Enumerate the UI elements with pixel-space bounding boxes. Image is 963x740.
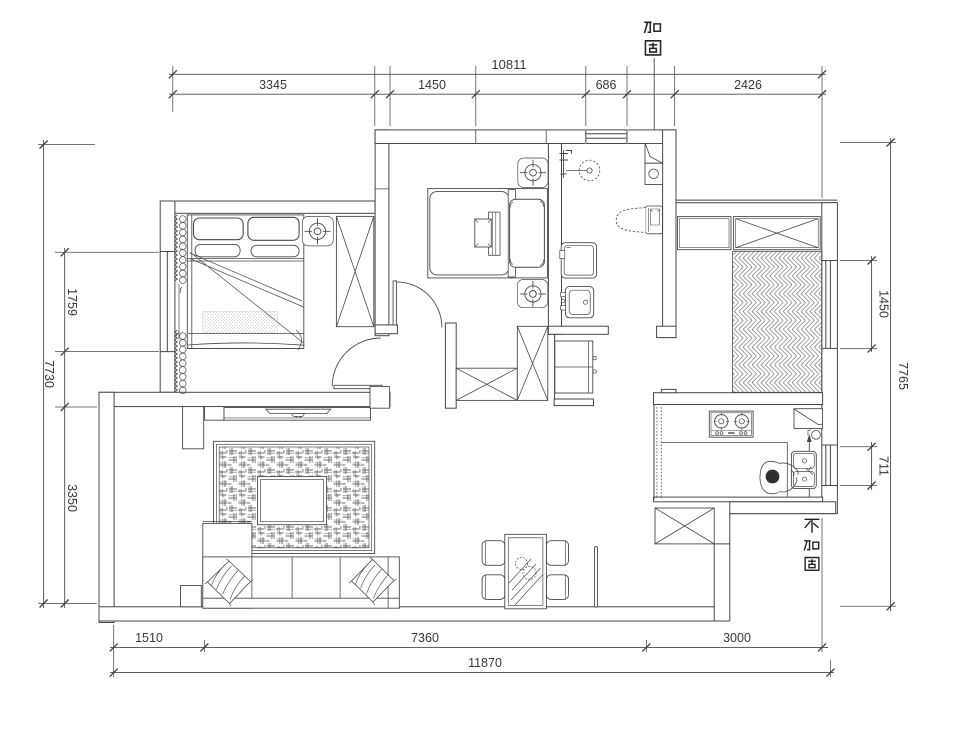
svg-text:711: 711 (877, 456, 891, 476)
svg-text:3345: 3345 (259, 78, 287, 92)
svg-text:7765: 7765 (896, 362, 910, 390)
svg-text:686: 686 (596, 78, 617, 92)
svg-text:11870: 11870 (468, 656, 502, 670)
svg-text:1450: 1450 (877, 290, 891, 318)
svg-text:3000: 3000 (723, 631, 751, 645)
svg-text:1450: 1450 (418, 78, 446, 92)
svg-text:3350: 3350 (65, 484, 79, 512)
svg-text:2426: 2426 (734, 78, 762, 92)
svg-text:10811: 10811 (491, 57, 526, 72)
svg-text:1510: 1510 (135, 631, 163, 645)
svg-text:1759: 1759 (65, 288, 79, 316)
svg-text:7730: 7730 (42, 360, 56, 388)
svg-text:7360: 7360 (411, 631, 439, 645)
